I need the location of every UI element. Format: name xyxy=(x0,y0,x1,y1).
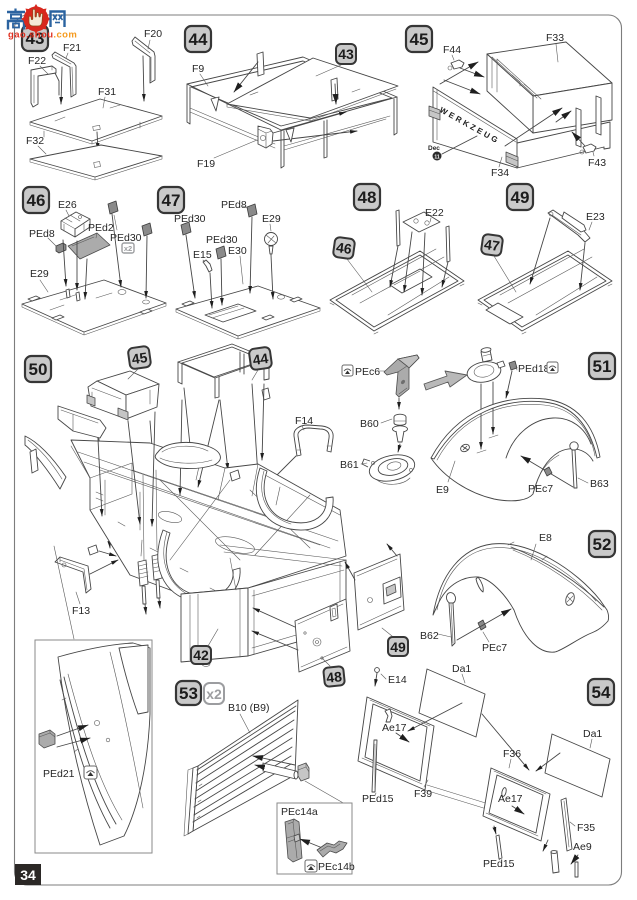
svg-text:Da1: Da1 xyxy=(583,728,602,740)
svg-text:B10 (B9): B10 (B9) xyxy=(228,702,269,714)
svg-text:Dec: Dec xyxy=(428,145,440,152)
svg-text:E9: E9 xyxy=(436,484,449,496)
svg-text:PEd8: PEd8 xyxy=(221,199,247,211)
svg-text:F9: F9 xyxy=(192,63,204,75)
svg-text:PEc14a: PEc14a xyxy=(281,806,318,818)
svg-text:B60: B60 xyxy=(360,418,379,430)
svg-text:50: 50 xyxy=(29,360,48,379)
svg-text:47: 47 xyxy=(483,236,501,254)
svg-text:Ae17: Ae17 xyxy=(382,722,407,734)
svg-text:PEc14b: PEc14b xyxy=(318,861,355,873)
svg-text:F32: F32 xyxy=(26,135,44,147)
svg-text:PEc7: PEc7 xyxy=(482,642,507,654)
svg-text:43: 43 xyxy=(338,46,354,62)
svg-text:x2: x2 xyxy=(124,244,132,253)
svg-text:F36: F36 xyxy=(503,748,521,760)
svg-text:F14: F14 xyxy=(295,415,313,427)
svg-text:PEd18: PEd18 xyxy=(518,363,550,375)
svg-text:F33: F33 xyxy=(546,32,564,44)
svg-text:F35: F35 xyxy=(577,822,595,834)
svg-text:46: 46 xyxy=(335,239,353,257)
svg-text:54: 54 xyxy=(592,683,611,702)
svg-text:49: 49 xyxy=(511,188,530,207)
svg-text:PEc7: PEc7 xyxy=(528,483,553,495)
svg-text:F21: F21 xyxy=(63,42,81,54)
svg-text:E26: E26 xyxy=(58,199,77,211)
svg-text:53: 53 xyxy=(179,684,198,703)
svg-text:PEc6: PEc6 xyxy=(355,366,380,378)
svg-text:B62: B62 xyxy=(420,630,439,642)
svg-text:F44: F44 xyxy=(443,44,461,56)
svg-text:PEd8: PEd8 xyxy=(29,228,55,240)
svg-text:PEd30: PEd30 xyxy=(174,213,206,225)
svg-text:PEd15: PEd15 xyxy=(362,793,394,805)
svg-text:B63: B63 xyxy=(590,478,609,490)
svg-text:F43: F43 xyxy=(588,157,606,169)
svg-text:45: 45 xyxy=(131,349,149,367)
svg-text:E29: E29 xyxy=(30,268,49,280)
svg-text:52: 52 xyxy=(593,535,612,554)
svg-text:E29: E29 xyxy=(262,213,281,225)
svg-text:45: 45 xyxy=(410,30,429,49)
svg-text:PEd15: PEd15 xyxy=(483,858,515,870)
svg-text:44: 44 xyxy=(189,30,208,49)
svg-text:E15: E15 xyxy=(193,249,212,261)
svg-text:F34: F34 xyxy=(491,167,509,179)
svg-text:47: 47 xyxy=(162,191,181,210)
svg-text:48: 48 xyxy=(326,668,343,686)
svg-text:Ae17: Ae17 xyxy=(498,793,523,805)
svg-text:F20: F20 xyxy=(144,28,162,40)
svg-text:44: 44 xyxy=(252,350,270,368)
svg-text:E14: E14 xyxy=(388,674,407,686)
svg-text:F22: F22 xyxy=(28,55,46,67)
svg-text:F39: F39 xyxy=(414,788,432,800)
svg-text:46: 46 xyxy=(27,191,46,210)
svg-text:F19: F19 xyxy=(197,158,215,170)
svg-text:E30: E30 xyxy=(228,245,247,257)
svg-text:F13: F13 xyxy=(72,605,90,617)
svg-text:E23: E23 xyxy=(586,211,605,223)
svg-text:gao.shou.com: gao.shou.com xyxy=(8,30,77,41)
svg-text:42: 42 xyxy=(193,647,209,663)
svg-text:PEd21: PEd21 xyxy=(43,768,75,780)
svg-text:Ae9: Ae9 xyxy=(573,841,592,853)
svg-text:51: 51 xyxy=(593,357,612,376)
svg-text:B61: B61 xyxy=(340,459,359,471)
svg-text:34: 34 xyxy=(20,867,36,883)
svg-text:F31: F31 xyxy=(98,86,116,98)
svg-text:Da1: Da1 xyxy=(452,663,471,675)
svg-text:E22: E22 xyxy=(425,207,444,219)
svg-text:E8: E8 xyxy=(539,532,552,544)
svg-text:x2: x2 xyxy=(206,686,222,702)
svg-text:11: 11 xyxy=(434,155,440,161)
svg-text:48: 48 xyxy=(358,188,377,207)
svg-text:49: 49 xyxy=(390,639,406,655)
